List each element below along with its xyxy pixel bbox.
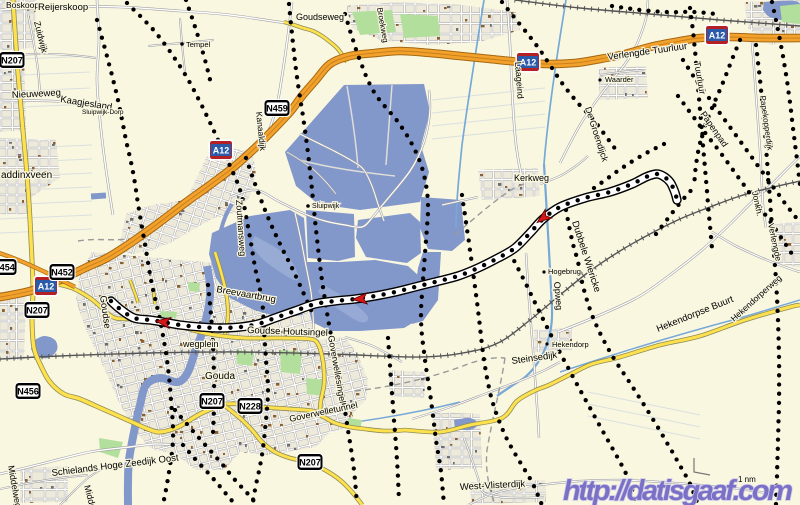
svg-text:Hogebrug: Hogebrug — [548, 267, 581, 276]
svg-text:N207: N207 — [201, 396, 223, 406]
svg-text:addinxveen: addinxveen — [1, 170, 52, 181]
svg-text:Boskoop: Boskoop — [6, 0, 39, 10]
svg-text:A12: A12 — [213, 145, 230, 155]
svg-text:Sluipwijk: Sluipwijk — [312, 203, 340, 210]
svg-text:N207: N207 — [1, 55, 23, 65]
svg-text:N228: N228 — [239, 401, 261, 411]
svg-text:Gouda: Gouda — [205, 371, 235, 382]
svg-text:N207: N207 — [299, 457, 321, 467]
svg-text:Sluipwijk-Dorp: Sluipwijk-Dorp — [82, 109, 124, 116]
svg-text:Reijerskoop: Reijerskoop — [38, 2, 88, 13]
svg-text:N459: N459 — [266, 103, 288, 113]
svg-text:Waarder: Waarder — [605, 75, 634, 84]
svg-text:N454: N454 — [0, 262, 15, 272]
svg-text:Goudseweg: Goudseweg — [296, 12, 344, 22]
svg-text:Kerkweg: Kerkweg — [514, 173, 549, 183]
svg-text:A12: A12 — [709, 30, 726, 40]
svg-text:wegplein: wegplein — [182, 339, 219, 349]
svg-text:N207: N207 — [26, 305, 48, 315]
svg-text:Hekendorp: Hekendorp — [552, 340, 589, 349]
svg-text:Tempel: Tempel — [186, 40, 211, 49]
svg-text:N456: N456 — [17, 386, 39, 396]
svg-text:N452: N452 — [51, 267, 73, 277]
svg-text:http://datisgaaf.com: http://datisgaaf.com — [563, 475, 793, 505]
svg-text:A12: A12 — [38, 281, 55, 291]
